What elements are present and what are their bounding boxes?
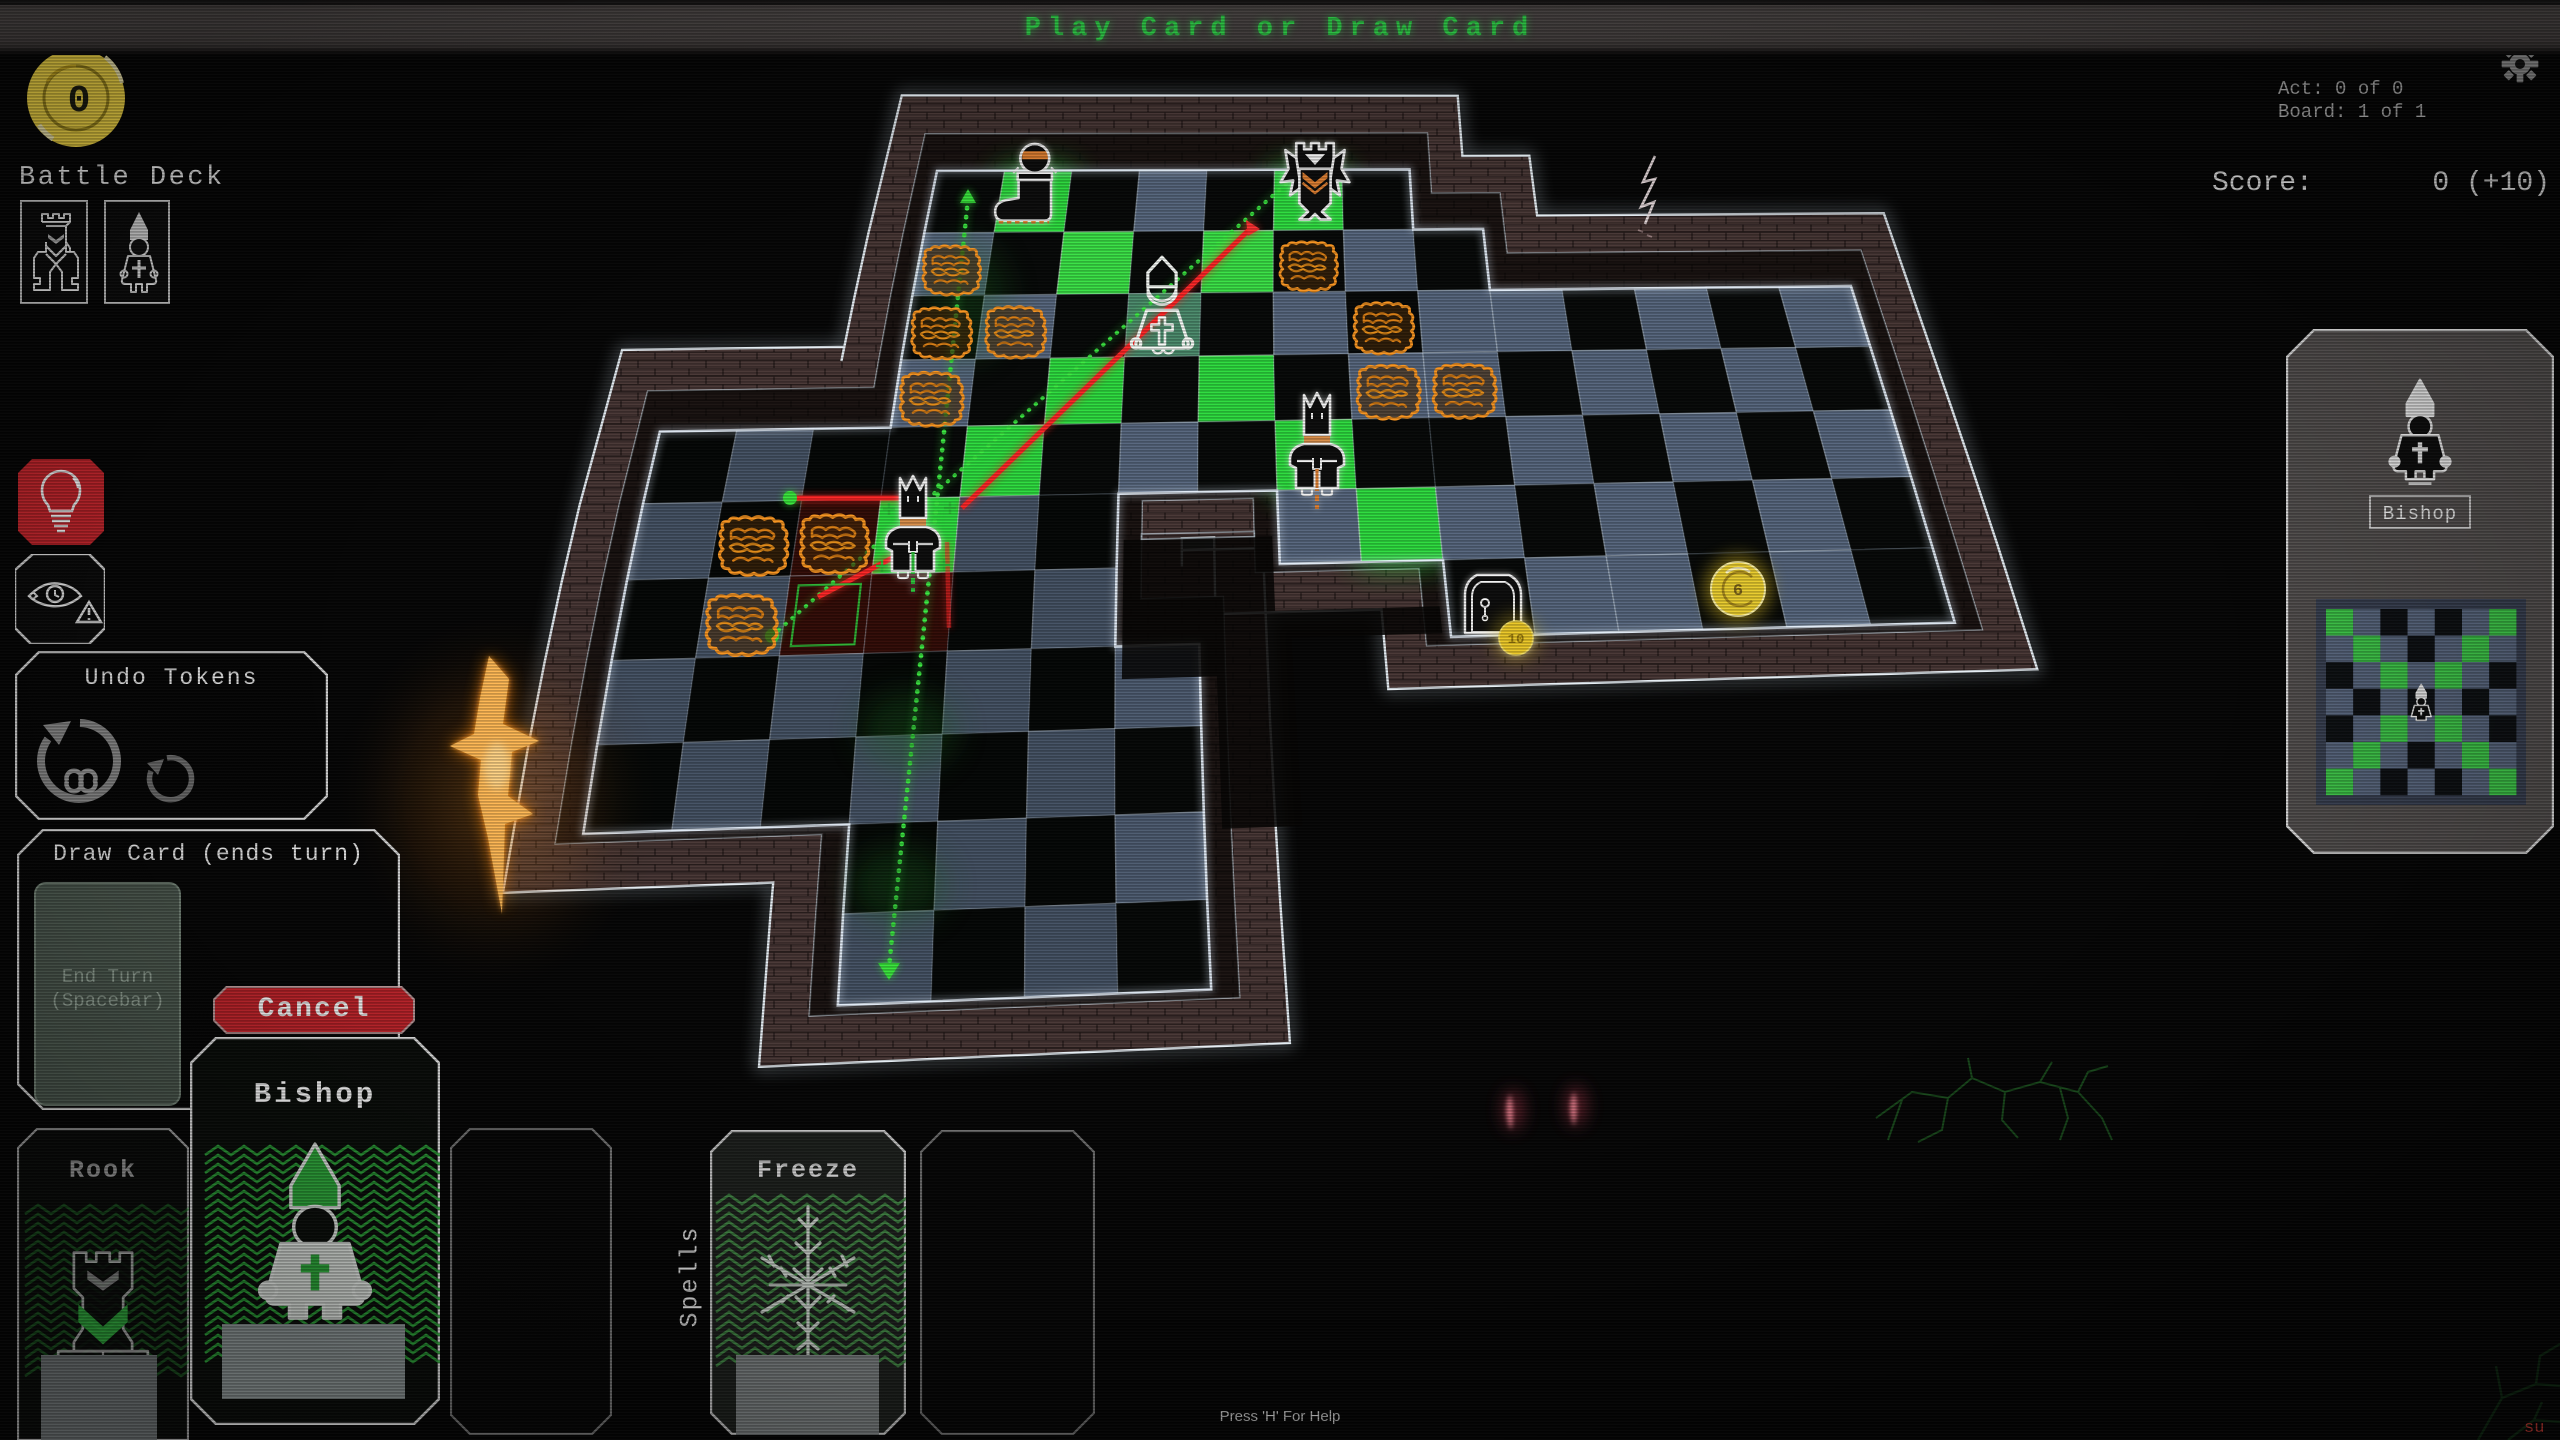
svg-text:0: 0 [68,80,91,123]
svg-text:Bishop: Bishop [2383,503,2457,525]
